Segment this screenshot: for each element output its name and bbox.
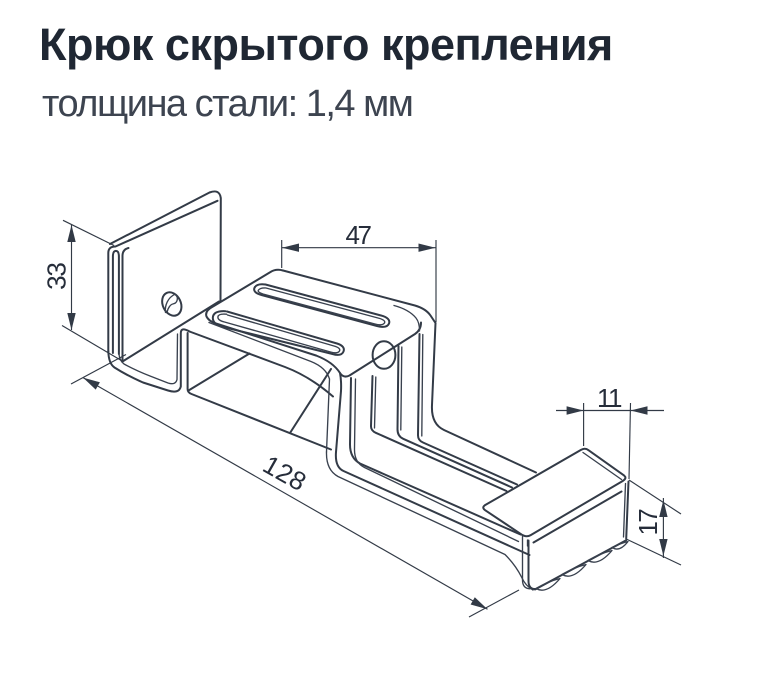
svg-text:17: 17 [633, 509, 663, 536]
svg-text:11: 11 [597, 383, 622, 413]
svg-text:47: 47 [346, 220, 372, 250]
svg-text:33: 33 [42, 263, 72, 290]
svg-text:128: 128 [258, 449, 312, 497]
